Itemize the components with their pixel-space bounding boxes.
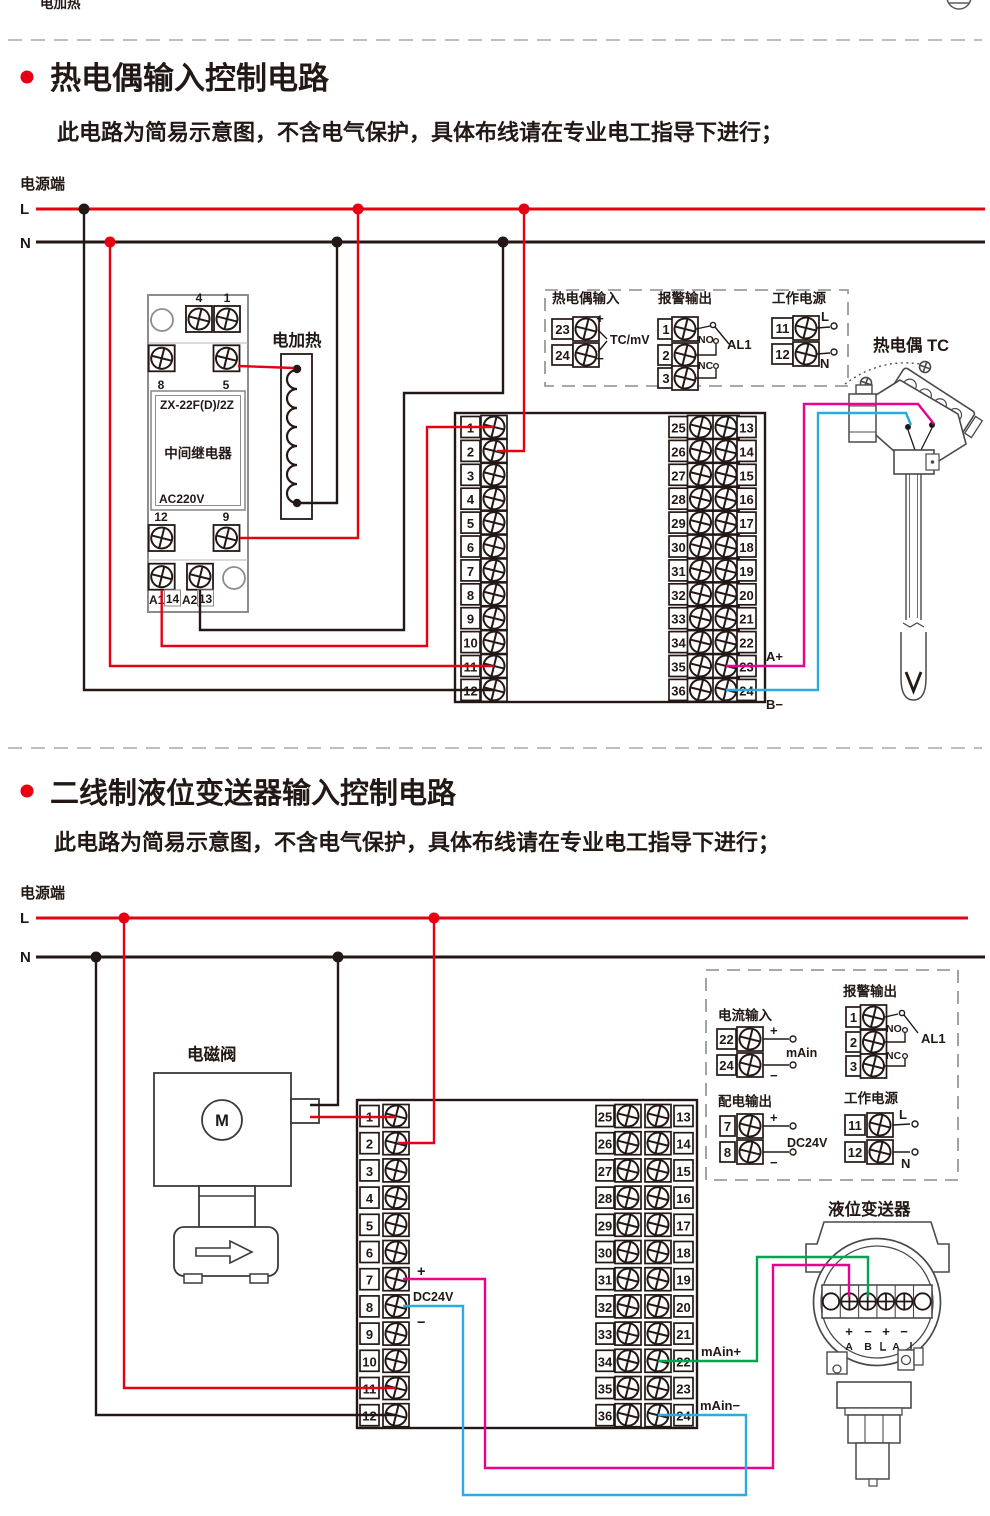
- terminal-number: 14: [676, 1137, 691, 1152]
- terminal-number: 23: [676, 1382, 690, 1397]
- terminal-number: 2: [467, 444, 474, 459]
- dc24v-name-label: DC24V: [413, 1290, 454, 1304]
- strip-plus-1: +: [845, 1324, 853, 1339]
- terminal-number: 3: [366, 1164, 373, 1179]
- terminal-number: 13: [676, 1110, 690, 1125]
- terminal-number: 10: [463, 636, 477, 651]
- terminal-number: 35: [671, 660, 685, 675]
- terminal-number: 33: [671, 612, 685, 627]
- terminal-number: 32: [598, 1300, 612, 1315]
- terminal-number: 11: [848, 1118, 862, 1133]
- section2-title: 二线制液位变送器输入控制电路: [50, 776, 457, 810]
- terminal-number: 3: [467, 468, 474, 483]
- relay-pin-9: 9: [223, 510, 230, 524]
- terminal-number: 3: [850, 1059, 857, 1074]
- section1-subtitle: 此电路为简易示意图，不含电气保护，具体布线请在专业电工指导下进行；: [57, 120, 783, 145]
- terminal-number: 27: [671, 468, 685, 483]
- terminal-number: 24: [719, 1058, 734, 1073]
- strip-hole-icon: [914, 1293, 930, 1309]
- terminal-number: 17: [739, 516, 753, 531]
- dist-output-title: 配电输出: [718, 1093, 772, 1109]
- terminal-number: 31: [671, 564, 685, 579]
- terminal-number: 23: [555, 322, 569, 337]
- section2-subtitle: 此电路为简易示意图，不含电气保护，具体布线请在专业电工指导下进行；: [54, 830, 780, 855]
- terminal-block-1: 1251322614327154281652917630187311983220…: [455, 413, 765, 703]
- wire-valve-to-neutral: [310, 957, 338, 1105]
- terminal-number: 13: [739, 421, 753, 436]
- terminal-number: 21: [739, 612, 753, 627]
- alarm-name-2: AL1: [921, 1031, 946, 1046]
- terminal24-b-minus-label: B−: [766, 697, 783, 712]
- level-transmitter: 液位变送器 + − + − A B A: [806, 1199, 949, 1486]
- terminal-number: 9: [366, 1327, 373, 1342]
- terminal22-main-plus-label: mAin+: [701, 1344, 742, 1359]
- terminal-number: 30: [598, 1246, 612, 1261]
- terminal-number: 7: [467, 564, 474, 579]
- terminal-number: 3: [662, 371, 669, 386]
- terminal-number: 22: [719, 1032, 733, 1047]
- terminal-number: 24: [555, 348, 570, 363]
- terminal24-main-minus-label: mAin−: [700, 1398, 741, 1413]
- terminal-number: 18: [676, 1246, 690, 1261]
- intermediate-relay: 4 1 8 5 ZX-22F(D)/2Z 中间继电器 AC220V 12 9 A…: [148, 291, 248, 612]
- dist-signal: DC24V: [787, 1136, 828, 1150]
- terminal-number: 8: [366, 1300, 373, 1315]
- terminal-number: 9: [467, 612, 474, 627]
- terminal-number: 4: [467, 492, 475, 507]
- work-power-title-2: 工作电源: [844, 1090, 898, 1106]
- sensor-nut: [849, 394, 876, 442]
- alarm-name-1: AL1: [727, 337, 752, 352]
- terminal-number: 5: [467, 516, 474, 531]
- terminal-number: 25: [598, 1110, 612, 1125]
- terminal-number: 12: [775, 347, 789, 362]
- terminal-number: 6: [467, 540, 474, 555]
- terminal-number: 31: [598, 1273, 612, 1288]
- strip-a-label: A: [845, 1341, 853, 1353]
- relay-pin-5: 5: [223, 378, 230, 392]
- terminal-number: 1: [662, 322, 669, 337]
- terminal-number: 33: [598, 1327, 612, 1342]
- terminal-number: 7: [724, 1119, 731, 1134]
- terminal-number: 1: [850, 1010, 857, 1025]
- terminal-number: 19: [739, 564, 753, 579]
- work-power-n-1: N: [820, 356, 829, 371]
- strip-hole-icon: [823, 1293, 839, 1309]
- power-terminal-label-2: 电源端: [20, 884, 65, 902]
- valve-connector: [291, 1099, 319, 1123]
- current-minus: −: [770, 1068, 778, 1083]
- terminal-number: 17: [676, 1218, 690, 1233]
- line-l-label-2: L: [20, 910, 29, 927]
- wiring-diagram-page: 电加热 热电偶输入控制电路 此电路为简易示意图，不含电气保护，具体布线请在专业电…: [0, 0, 990, 1516]
- terminal-number: 26: [598, 1137, 612, 1152]
- relay-name: 中间继电器: [164, 445, 232, 461]
- terminal-number: 20: [739, 588, 753, 603]
- thermocouple-label: 热电偶 TC: [873, 335, 949, 355]
- terminal-number: 30: [671, 540, 685, 555]
- dist-plus: +: [770, 1110, 778, 1125]
- relay-voltage: AC220V: [159, 492, 204, 506]
- terminal-number: 15: [676, 1164, 690, 1179]
- current-signal: mAin: [786, 1046, 817, 1060]
- relay-pin-12: 12: [154, 510, 168, 524]
- bullet-icon: [21, 785, 34, 798]
- section1-title: 热电偶输入控制电路: [50, 61, 330, 96]
- terminal-number: 2: [366, 1137, 373, 1152]
- terminal-number: 26: [671, 444, 685, 459]
- terminal-number: 8: [724, 1145, 731, 1160]
- strip-minus-2: −: [900, 1324, 908, 1339]
- relay-pin-8: 8: [158, 378, 165, 392]
- terminal-number: 34: [598, 1354, 613, 1369]
- terminal-number: 7: [366, 1273, 373, 1288]
- terminal-number: 15: [739, 468, 753, 483]
- screw-icon: [918, 360, 932, 374]
- minus-circle-icon: [947, 0, 971, 9]
- terminal-number: 8: [467, 588, 474, 603]
- relay-pin-1: 1: [224, 291, 231, 305]
- work-power-title-1: 工作电源: [772, 290, 826, 306]
- alarm-no-label-2: NO: [886, 1023, 902, 1035]
- terminal-number: 29: [598, 1218, 612, 1233]
- tc-minus: −: [596, 351, 604, 366]
- relay-model: ZX-22F(D)/2Z: [160, 398, 234, 412]
- tc-plus: +: [596, 311, 604, 326]
- heater-label: 电加热: [272, 330, 322, 350]
- thermocouple-sensor: 热电偶 TC: [845, 335, 984, 700]
- relay-hole-icon: [223, 567, 245, 589]
- line-n-label-2: N: [20, 949, 31, 966]
- alarm-nc-label-1: NC: [698, 360, 714, 372]
- terminal-number: 19: [676, 1273, 690, 1288]
- alarm-output-title-1: 报警输出: [658, 290, 712, 306]
- alarm-no-label-1: NO: [698, 334, 714, 346]
- terminal-number: 21: [676, 1327, 690, 1342]
- io-inset-box-2: 报警输出 123 NO NC AL1 电流输入 2224 + mAin − 配电…: [706, 970, 958, 1180]
- terminal-number: 6: [366, 1246, 373, 1261]
- terminal-number: 2: [850, 1035, 857, 1050]
- terminal-number: 32: [671, 588, 685, 603]
- terminal-number: 36: [598, 1409, 612, 1424]
- dc24v-minus-label: −: [417, 1315, 425, 1331]
- current-plus: +: [770, 1023, 778, 1038]
- line-n-label-1: N: [20, 235, 31, 252]
- terminal-number: 16: [676, 1191, 690, 1206]
- terminal-number: 35: [598, 1382, 612, 1397]
- relay-hole-icon: [151, 309, 173, 331]
- previous-section-partial-label: 电加热: [40, 0, 81, 11]
- terminal-number: 14: [739, 444, 754, 459]
- screw-icon: [896, 1293, 912, 1309]
- diagram-canvas: 电加热 热电偶输入控制电路 此电路为简易示意图，不含电气保护，具体布线请在专业电…: [0, 0, 990, 1516]
- terminal-number: 11: [776, 321, 790, 336]
- terminal-number: 34: [671, 636, 686, 651]
- terminal-number: 28: [671, 492, 685, 507]
- relay-pin-a2: A2: [182, 593, 198, 607]
- terminal-number: 16: [739, 492, 753, 507]
- alarm-nc-label-2: NC: [886, 1050, 902, 1062]
- solenoid-valve: 电磁阀 M: [154, 1044, 319, 1283]
- relay-pin-4: 4: [196, 291, 203, 305]
- terminal-number: 5: [366, 1218, 373, 1233]
- terminal-number: 2: [662, 348, 669, 363]
- tc-signal: TC/mV: [610, 333, 650, 347]
- terminal-number: 20: [676, 1300, 690, 1315]
- power-terminal-label-1: 电源端: [20, 175, 65, 193]
- screw-icon: [878, 1293, 894, 1309]
- sensor-probe: [901, 474, 926, 700]
- dc24v-plus-label: +: [417, 1264, 425, 1280]
- terminal-number: 27: [598, 1164, 612, 1179]
- tc-input-title: 热电偶输入: [552, 290, 620, 306]
- io-inset-box-1: 热电偶输入 2324 + − TC/mV 报警输出 123 NO NC AL1 …: [545, 290, 848, 391]
- transmitter-nut: [848, 1415, 900, 1443]
- relay-pin-14: 14: [166, 592, 180, 606]
- terminal-block-2: 1251322614327154281652917630187311983220…: [357, 1100, 697, 1428]
- bullet-icon: [21, 71, 34, 84]
- terminal-number: 10: [362, 1354, 376, 1369]
- terminal23-a-plus-label: A+: [766, 649, 783, 664]
- terminal-number: 22: [739, 636, 753, 651]
- terminal-number: 25: [671, 421, 685, 436]
- dist-minus: −: [770, 1155, 778, 1170]
- terminal-number: 18: [739, 540, 753, 555]
- work-power-l-1: L: [821, 309, 829, 324]
- work-power-n-2: N: [901, 1156, 910, 1171]
- strip-plus-2: +: [882, 1324, 890, 1339]
- motor-m-label: M: [215, 1112, 229, 1130]
- line-l-label-1: L: [20, 201, 29, 218]
- current-input-title: 电流输入: [718, 1007, 772, 1023]
- terminal-number: 29: [671, 516, 685, 531]
- alarm-output-title-2: 报警输出: [843, 983, 897, 999]
- terminal-number: 36: [671, 683, 685, 698]
- strip-b-label: B: [864, 1341, 872, 1353]
- valve-label: 电磁阀: [187, 1044, 237, 1064]
- terminal-number: 12: [848, 1145, 862, 1160]
- terminal-number: 28: [598, 1191, 612, 1206]
- terminal-number: 4: [366, 1191, 374, 1206]
- transmitter-label: 液位变送器: [828, 1199, 911, 1219]
- strip-minus-1: −: [864, 1324, 872, 1339]
- work-power-l-2: L: [899, 1107, 907, 1122]
- electric-heater: 电加热: [272, 330, 322, 519]
